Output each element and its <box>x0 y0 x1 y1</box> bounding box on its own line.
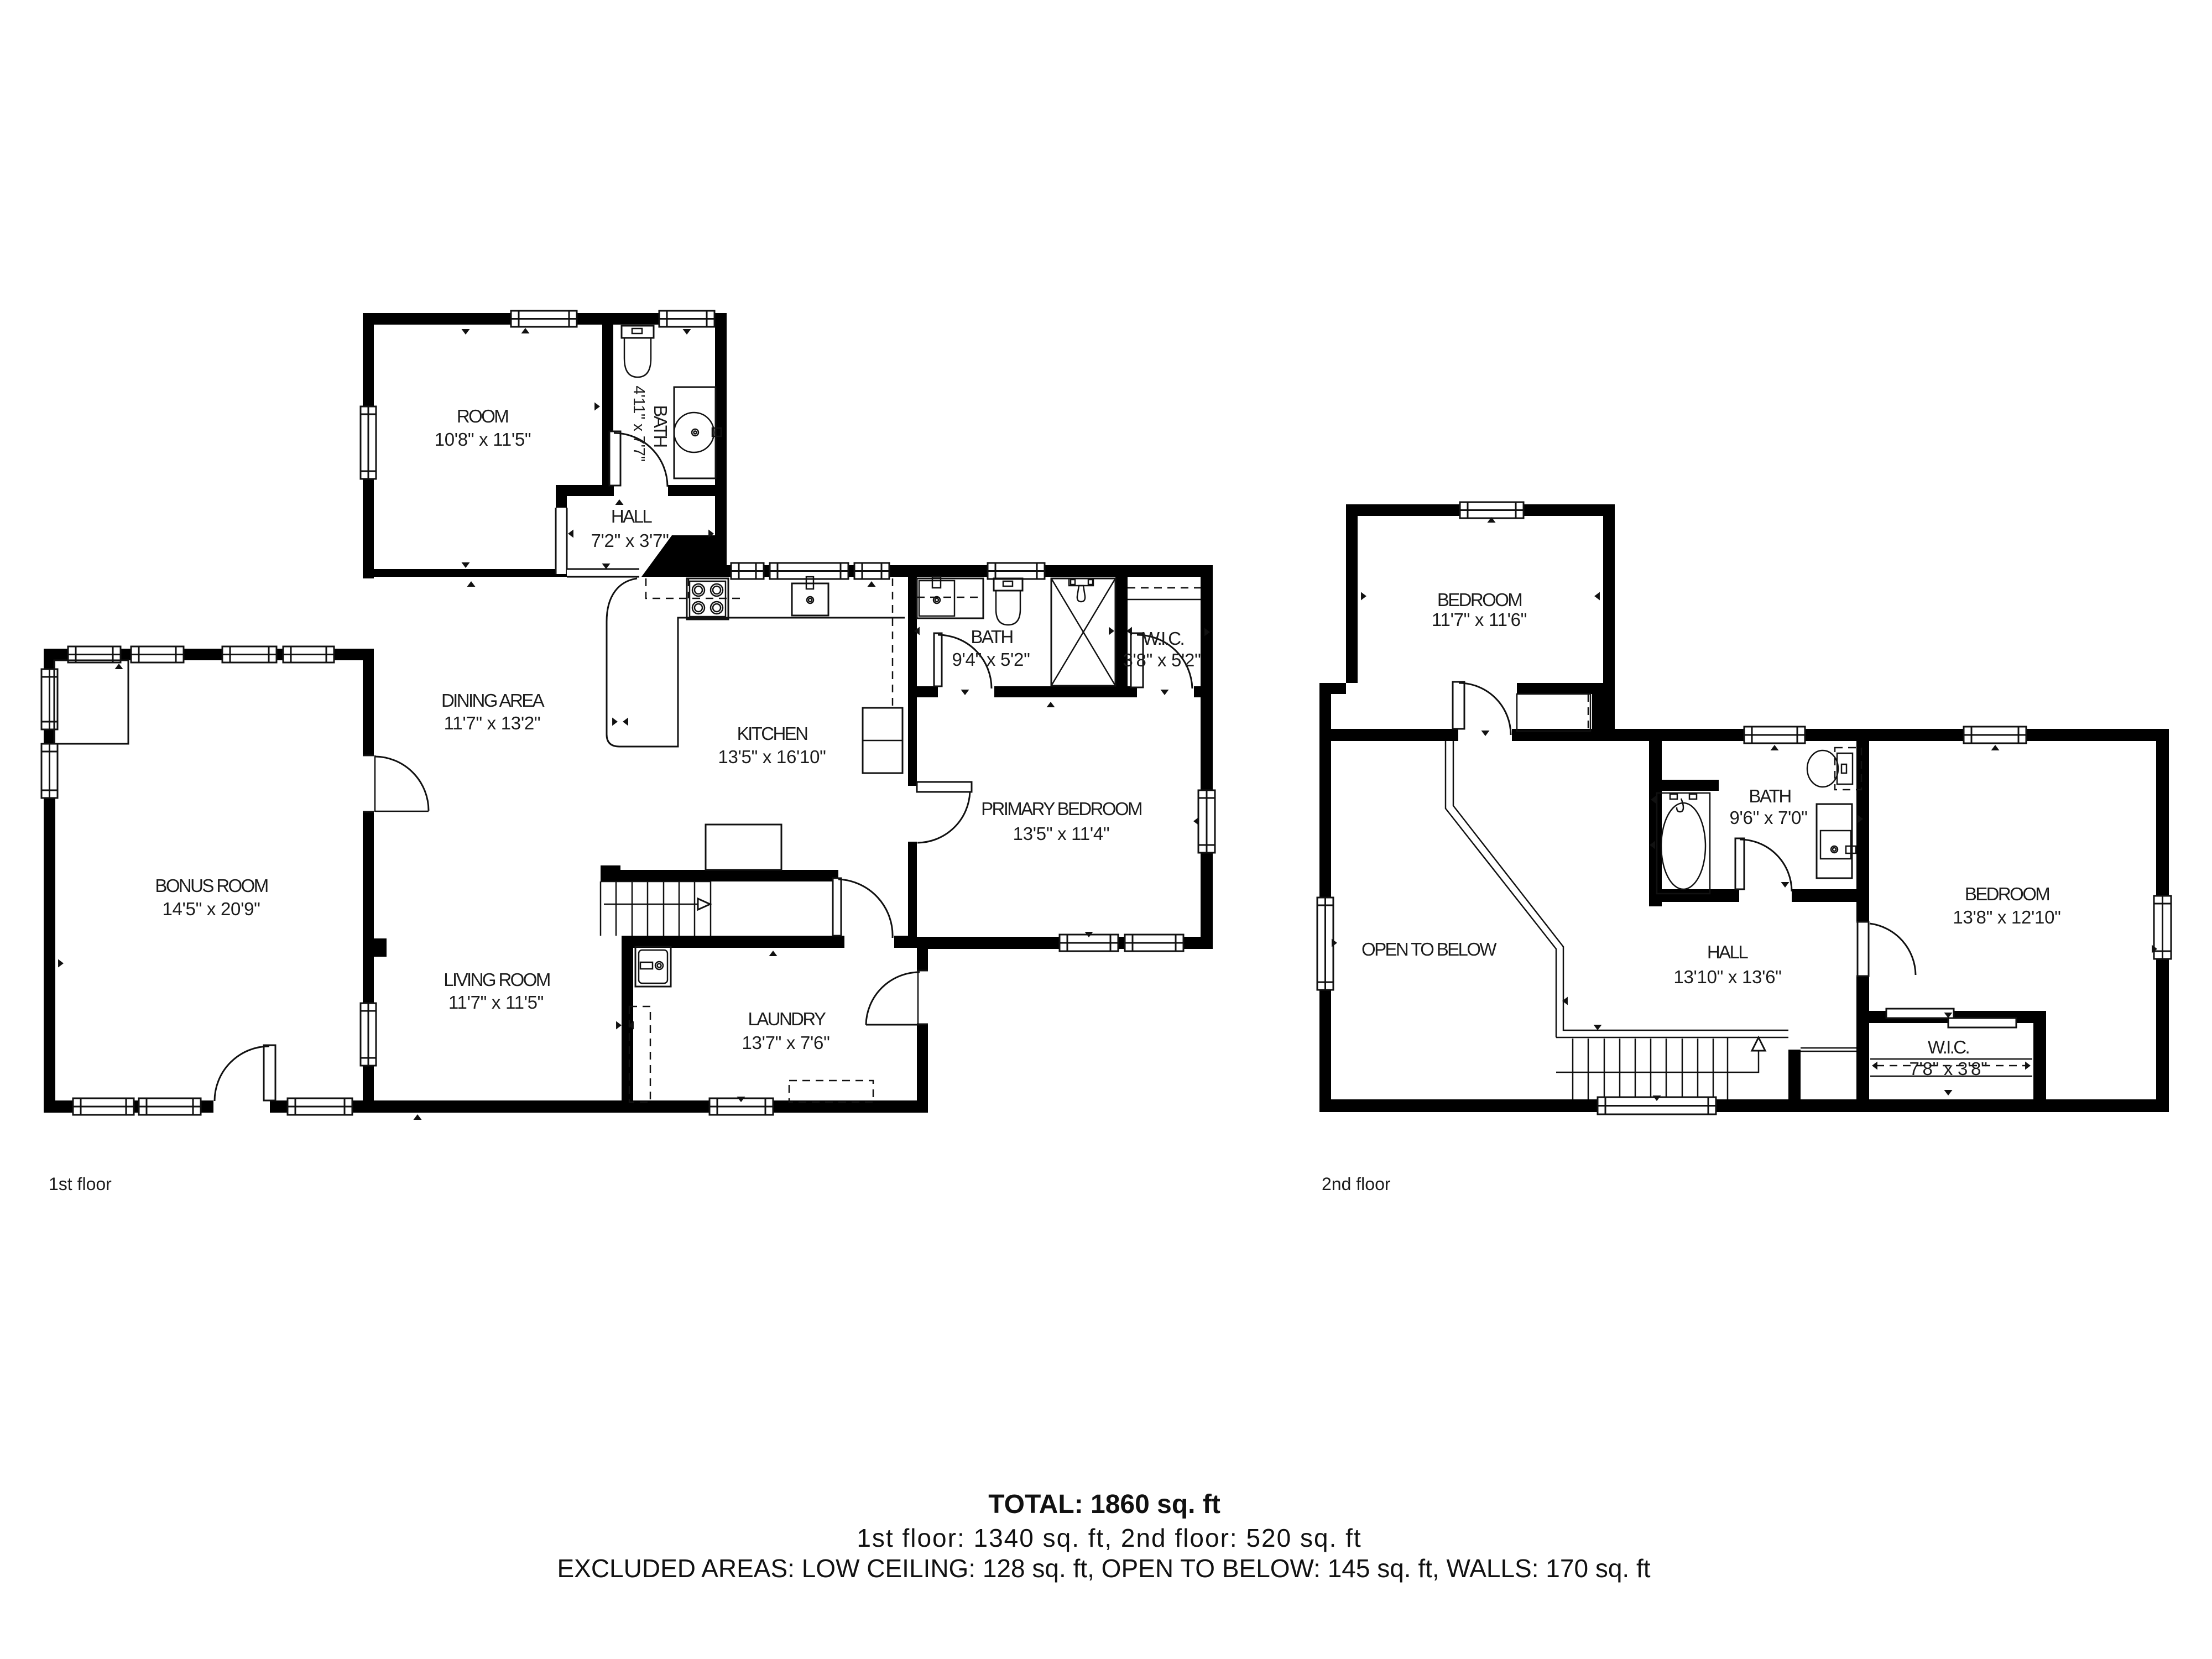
svg-text:HALL: HALL <box>1707 942 1748 962</box>
svg-text:4'11" x 7'7": 4'11" x 7'7" <box>630 385 648 461</box>
svg-text:W.I.C.: W.I.C. <box>1142 628 1184 649</box>
svg-text:HALL: HALL <box>611 506 652 526</box>
svg-text:TOTAL: 1860 sq. ft: TOTAL: 1860 sq. ft <box>988 1490 1220 1519</box>
svg-text:14'5" x 20'9": 14'5" x 20'9" <box>162 899 260 919</box>
svg-text:W.I.C.: W.I.C. <box>1928 1037 1969 1057</box>
svg-text:BEDROOM: BEDROOM <box>1965 884 2049 904</box>
svg-text:BATH: BATH <box>1749 786 1791 806</box>
svg-text:11'7" x 11'5": 11'7" x 11'5" <box>448 992 544 1013</box>
svg-text:7'2" x 3'7": 7'2" x 3'7" <box>591 530 669 551</box>
svg-text:1st floor: 1340 sq. ft, 2nd fl: 1st floor: 1340 sq. ft, 2nd floor: 520 s… <box>857 1524 1361 1552</box>
svg-text:LIVING ROOM: LIVING ROOM <box>444 969 550 990</box>
svg-text:PRIMARY BEDROOM: PRIMARY BEDROOM <box>981 799 1141 819</box>
svg-text:11'7" x 13'2": 11'7" x 13'2" <box>444 713 541 733</box>
svg-text:10'8" x 11'5": 10'8" x 11'5" <box>435 429 531 450</box>
svg-text:BATH: BATH <box>971 627 1013 647</box>
svg-text:11'7" x 11'6": 11'7" x 11'6" <box>1432 609 1527 630</box>
svg-text:BEDROOM: BEDROOM <box>1437 589 1521 610</box>
svg-text:LAUNDRY: LAUNDRY <box>748 1009 826 1029</box>
svg-text:EXCLUDED AREAS: LOW CEILING: 1: EXCLUDED AREAS: LOW CEILING: 128 sq. ft,… <box>557 1554 1650 1583</box>
svg-text:13'5" x 16'10": 13'5" x 16'10" <box>718 747 826 767</box>
svg-text:13'8" x 12'10": 13'8" x 12'10" <box>1953 907 2060 927</box>
svg-text:OPEN TO BELOW: OPEN TO BELOW <box>1361 939 1497 959</box>
svg-text:13'5" x 11'4": 13'5" x 11'4" <box>1013 823 1110 844</box>
svg-text:KITCHEN: KITCHEN <box>737 723 807 744</box>
svg-text:9'6" x 7'0": 9'6" x 7'0" <box>1730 807 1808 828</box>
svg-text:13'10" x 13'6": 13'10" x 13'6" <box>1673 967 1781 987</box>
svg-text:2nd floor: 2nd floor <box>1322 1174 1391 1194</box>
svg-text:1st floor: 1st floor <box>49 1174 112 1194</box>
svg-text:9'4" x 5'2": 9'4" x 5'2" <box>952 649 1030 670</box>
svg-text:BATH: BATH <box>650 405 671 447</box>
svg-text:3'8" x 5'2": 3'8" x 5'2" <box>1123 650 1201 670</box>
svg-text:7'8" x 3'8": 7'8" x 3'8" <box>1910 1058 1987 1079</box>
svg-text:13'7" x 7'6": 13'7" x 7'6" <box>742 1032 830 1053</box>
svg-text:DINING AREA: DINING AREA <box>441 690 545 711</box>
svg-text:ROOM: ROOM <box>457 406 508 426</box>
svg-text:BONUS ROOM: BONUS ROOM <box>155 875 267 896</box>
